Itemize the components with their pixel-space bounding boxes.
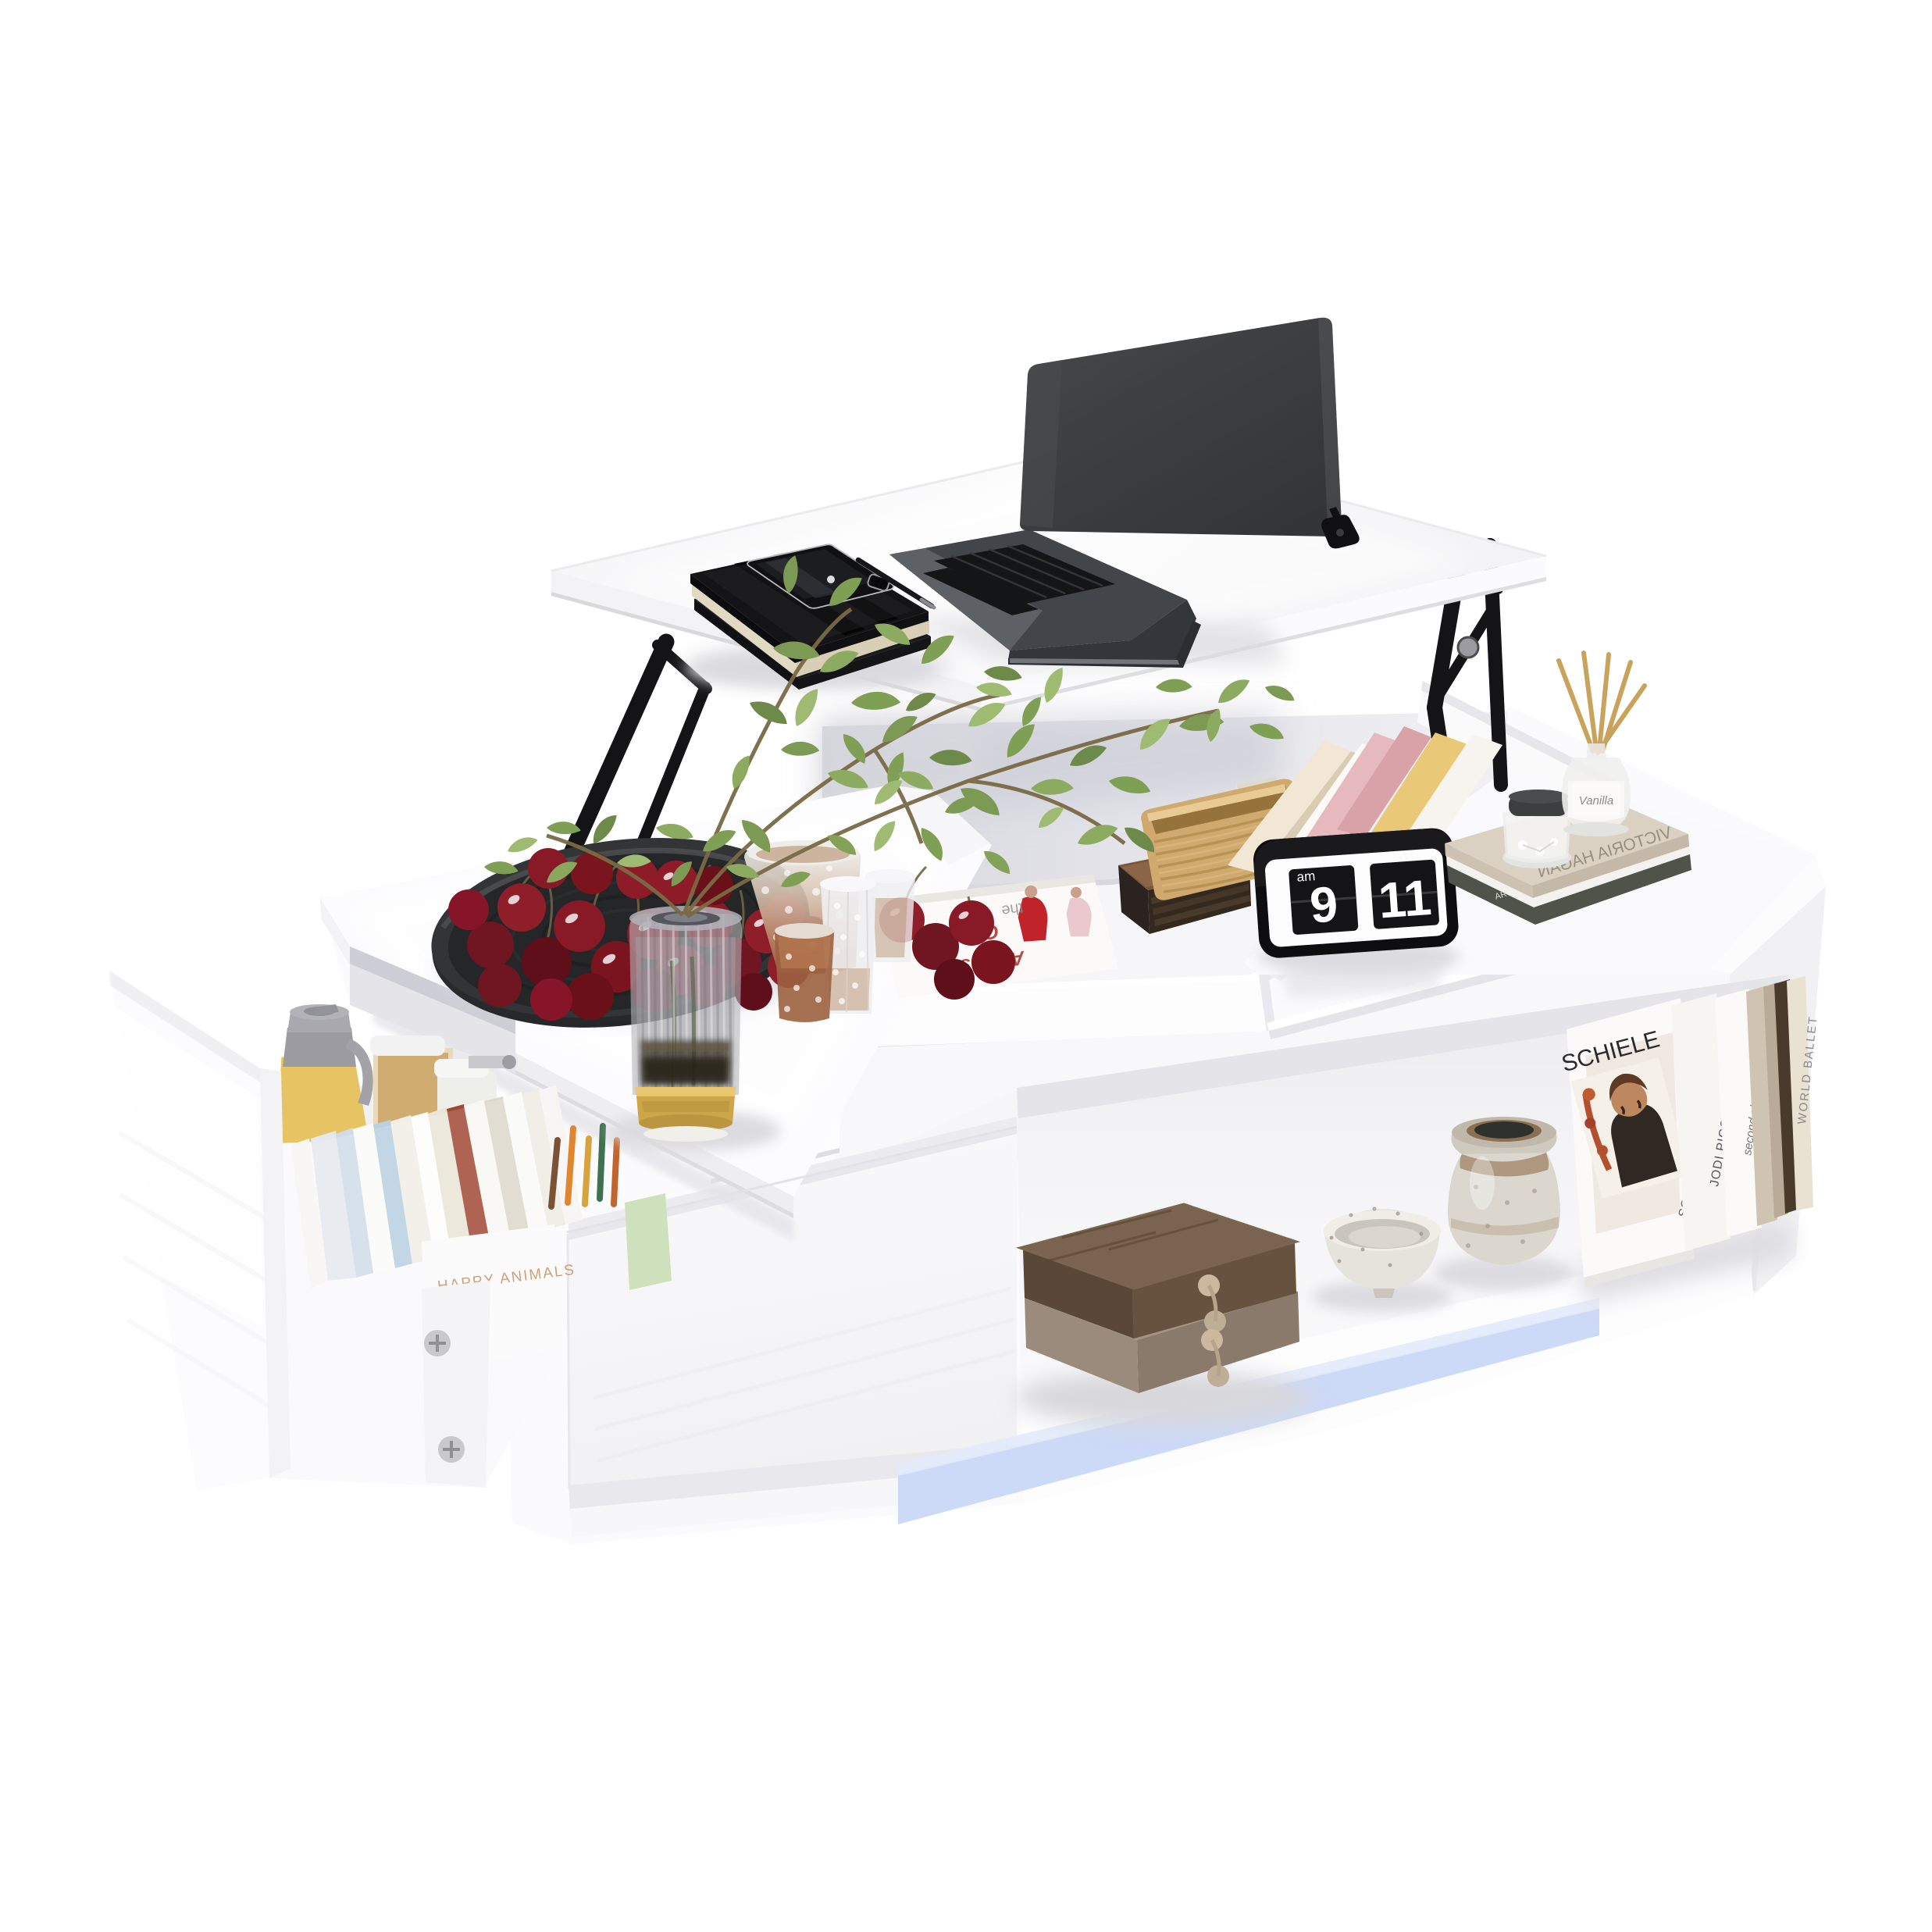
svg-text:9: 9: [1308, 875, 1340, 933]
svg-text:11: 11: [1377, 869, 1434, 929]
svg-text:Vanilla: Vanilla: [1579, 794, 1613, 807]
svg-text:am: am: [1296, 868, 1316, 885]
svg-text:the: the: [1000, 900, 1025, 920]
